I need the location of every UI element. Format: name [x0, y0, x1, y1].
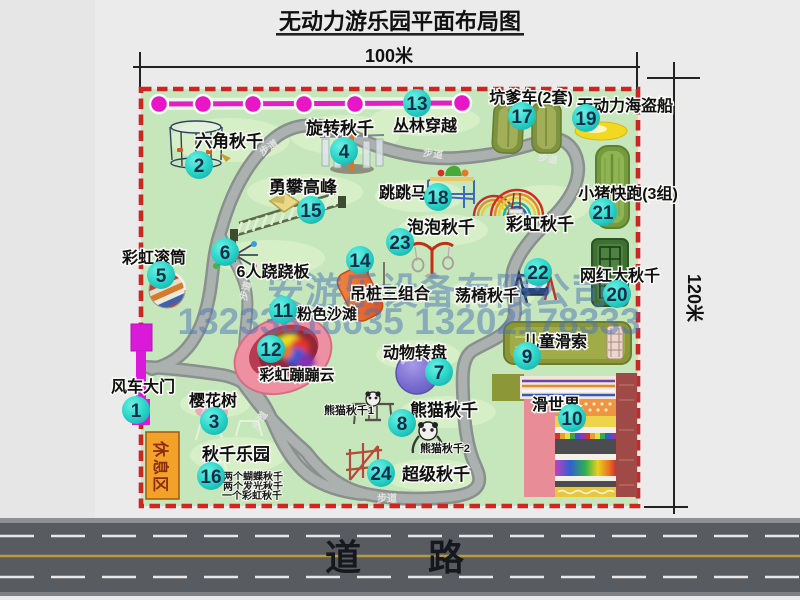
svg-text:丛林穿越: 丛林穿越 [393, 116, 458, 135]
svg-text:23: 23 [389, 233, 410, 254]
svg-text:120米: 120米 [684, 274, 705, 323]
svg-text:步道: 步道 [377, 492, 397, 505]
svg-text:18: 18 [427, 188, 448, 209]
svg-text:16: 16 [200, 467, 221, 488]
svg-text:熊猫秋千1: 熊猫秋千1 [324, 403, 374, 417]
svg-text:6人跷跷板: 6人跷跷板 [237, 262, 311, 281]
svg-text:无动力游乐园平面布局图: 无动力游乐园平面布局图 [279, 9, 521, 34]
svg-text:12: 12 [260, 340, 281, 361]
svg-text:13: 13 [406, 94, 427, 115]
svg-text:1: 1 [131, 401, 142, 422]
svg-text:15: 15 [300, 201, 322, 222]
svg-text:彩虹蹦蹦云: 彩虹蹦蹦云 [258, 366, 334, 384]
svg-text:泡泡秋千: 泡泡秋千 [407, 217, 475, 237]
svg-text:熊猫秋千2: 熊猫秋千2 [420, 441, 470, 455]
svg-text:区: 区 [151, 476, 169, 492]
svg-text:22: 22 [527, 263, 548, 284]
svg-text:11: 11 [273, 301, 294, 322]
svg-text:2: 2 [194, 156, 205, 177]
svg-text:荡椅秋千: 荡椅秋千 [455, 286, 519, 305]
svg-text:24: 24 [370, 464, 392, 485]
svg-text:彩虹秋千: 彩虹秋千 [505, 214, 574, 234]
svg-text:9: 9 [522, 347, 533, 368]
svg-text:19: 19 [575, 109, 596, 130]
svg-text:道: 道 [325, 537, 361, 578]
svg-text:8: 8 [397, 414, 408, 435]
svg-text:风车大门: 风车大门 [111, 377, 175, 396]
svg-text:吊桩三组合: 吊桩三组合 [350, 284, 431, 303]
svg-text:旋转秋千: 旋转秋千 [305, 118, 374, 138]
svg-text:4: 4 [339, 142, 350, 163]
svg-text:6: 6 [220, 243, 231, 264]
svg-text:勇攀高峰: 勇攀高峰 [269, 177, 338, 197]
svg-text:休: 休 [151, 440, 170, 458]
svg-text:坑爹车(2套): 坑爹车(2套) [489, 88, 573, 107]
svg-text:小猪快跑(3组): 小猪快跑(3组) [578, 184, 678, 203]
svg-text:六角秋千: 六角秋千 [195, 131, 263, 151]
svg-text:20: 20 [606, 285, 627, 306]
svg-text:跳跳马: 跳跳马 [379, 183, 427, 202]
svg-text:路: 路 [428, 537, 465, 578]
svg-text:5: 5 [156, 266, 167, 287]
svg-text:超级秋千: 超级秋千 [402, 464, 470, 484]
svg-text:17: 17 [511, 107, 532, 128]
svg-text:7: 7 [434, 363, 445, 384]
svg-text:21: 21 [592, 203, 614, 224]
svg-text:熊猫秋千: 熊猫秋千 [410, 400, 478, 420]
svg-text:3: 3 [209, 412, 220, 433]
svg-text:100米: 100米 [365, 45, 414, 66]
svg-text:粉色沙滩: 粉色沙滩 [297, 305, 357, 323]
svg-text:14: 14 [349, 251, 371, 272]
svg-text:10: 10 [561, 409, 582, 430]
svg-text:息: 息 [151, 459, 170, 475]
svg-text:一个彩虹秋千: 一个彩虹秋千 [222, 489, 282, 502]
svg-text:秋千乐园: 秋千乐园 [202, 444, 270, 464]
